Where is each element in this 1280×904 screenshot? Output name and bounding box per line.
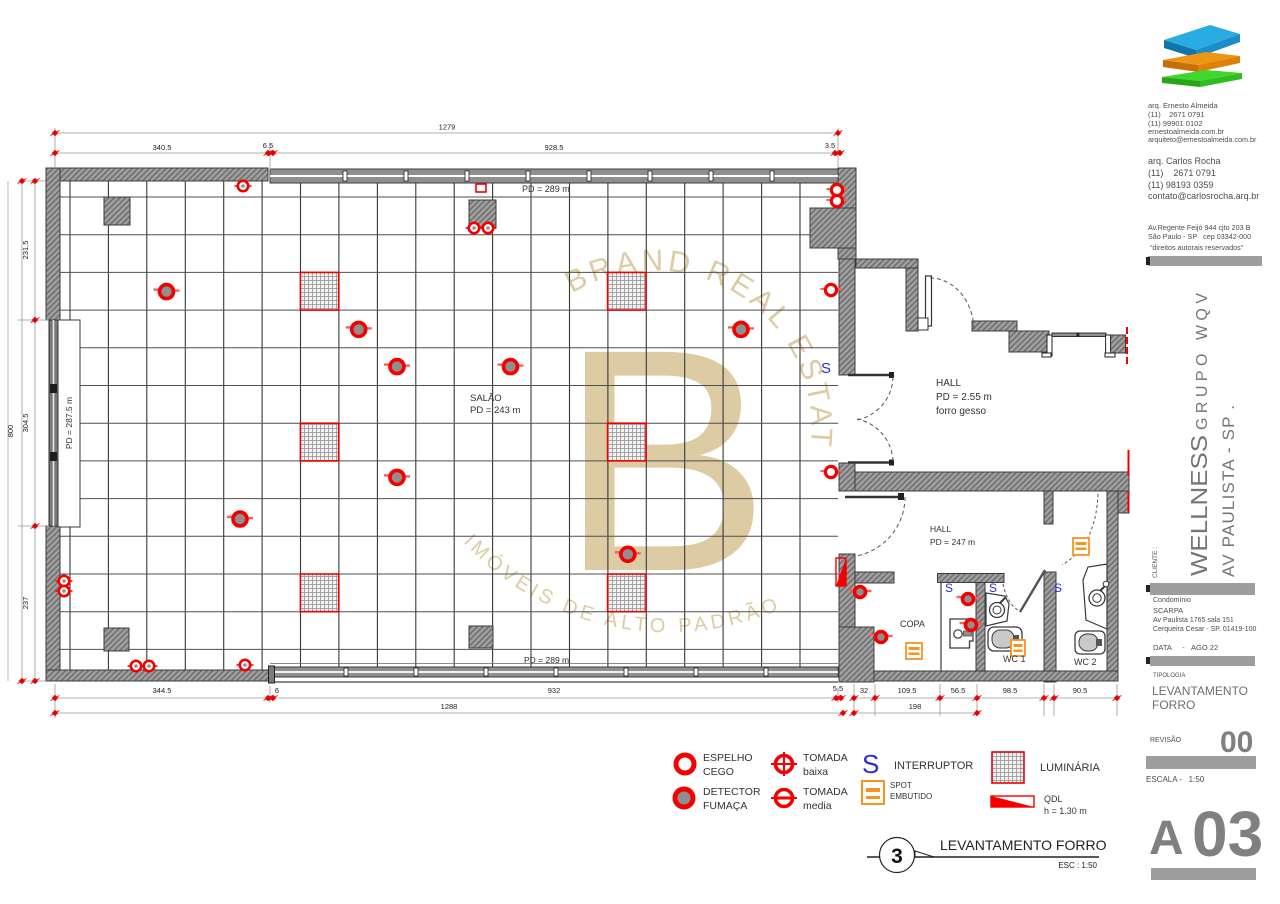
svg-text:S: S	[1054, 581, 1062, 595]
svg-text:REVISÃO: REVISÃO	[1150, 735, 1182, 744]
svg-text:LEVANTAMENTO FORRO: LEVANTAMENTO FORRO	[940, 837, 1107, 853]
svg-text:WELLNESS: WELLNESS	[1186, 435, 1212, 576]
svg-text:(11) 2671 0791: (11) 2671 0791	[1148, 110, 1205, 119]
svg-text:WC 2: WC 2	[1074, 657, 1097, 667]
svg-text:PD = 2.55 m: PD = 2.55 m	[936, 392, 992, 403]
svg-text:(11) 2671 0791: (11) 2671 0791	[1148, 168, 1216, 178]
svg-text:3: 3	[891, 845, 903, 868]
svg-text:arq. Ernesto Almeida: arq. Ernesto Almeida	[1148, 101, 1218, 110]
svg-text:1288: 1288	[441, 702, 458, 711]
svg-text:1279: 1279	[439, 123, 456, 132]
svg-text:arquiteto@ernestoalmeida.com.b: arquiteto@ernestoalmeida.com.br	[1148, 135, 1257, 144]
svg-text:ESPELHO: ESPELHO	[703, 752, 753, 764]
svg-text:3.5: 3.5	[825, 141, 835, 150]
svg-text:5.5: 5.5	[833, 684, 843, 693]
svg-text:S: S	[821, 360, 831, 377]
svg-text:Av.Regente Feijó 944 cjto 203: Av.Regente Feijó 944 cjto 203 B	[1148, 223, 1251, 232]
svg-text:CEGO: CEGO	[703, 766, 734, 778]
svg-text:PD = 243 m: PD = 243 m	[470, 405, 521, 416]
svg-text:304.5: 304.5	[21, 414, 30, 433]
svg-text:contato@carlosrocha.arq.br: contato@carlosrocha.arq.br	[1148, 191, 1259, 201]
svg-text:56.5: 56.5	[951, 686, 966, 695]
svg-text:Av Paulista 1765 sala 151: Av Paulista 1765 sala 151	[1153, 617, 1234, 624]
svg-text:S: S	[862, 749, 879, 779]
svg-text:baixa: baixa	[803, 766, 828, 778]
svg-text:AV PAULISTA - SP .: AV PAULISTA - SP .	[1219, 405, 1238, 577]
svg-text:800: 800	[6, 425, 15, 438]
svg-text:928.5: 928.5	[545, 143, 564, 152]
svg-text:PD = 289 m: PD = 289 m	[524, 655, 569, 665]
svg-text:SCARPA: SCARPA	[1153, 606, 1183, 615]
svg-text:HALL: HALL	[930, 524, 952, 534]
svg-text:A: A	[1149, 812, 1184, 865]
svg-text:CLIENTE :: CLIENTE :	[1152, 547, 1159, 578]
svg-text:ESC : 1:50: ESC : 1:50	[1058, 861, 1097, 870]
svg-text:231.5: 231.5	[21, 241, 30, 260]
svg-text:São Paulo - SP cep 03342-000: São Paulo - SP cep 03342-000	[1148, 232, 1251, 241]
svg-text:INTERRUPTOR: INTERRUPTOR	[894, 760, 973, 772]
svg-text:SPOT: SPOT	[890, 781, 912, 790]
svg-text:6: 6	[275, 686, 279, 695]
svg-text:Condomínio: Condomínio	[1153, 597, 1191, 604]
svg-text:198: 198	[909, 702, 922, 711]
svg-text:SALÃO: SALÃO	[470, 393, 502, 404]
svg-text:90.5: 90.5	[1073, 686, 1088, 695]
svg-text:340.5: 340.5	[153, 143, 172, 152]
svg-text:LEVANTAMENTO: LEVANTAMENTO	[1152, 684, 1248, 698]
svg-text:HALL: HALL	[936, 378, 961, 389]
svg-text:344.5: 344.5	[153, 686, 172, 695]
svg-text:media: media	[803, 800, 832, 812]
svg-text:TOMADA: TOMADA	[803, 786, 848, 798]
svg-text:98.5: 98.5	[1003, 686, 1018, 695]
svg-text:WC 1: WC 1	[1003, 654, 1026, 664]
svg-text:forro gesso: forro gesso	[936, 406, 986, 417]
svg-text:109.5: 109.5	[898, 686, 917, 695]
svg-text:COPA: COPA	[900, 619, 925, 629]
svg-text:FORRO: FORRO	[1152, 698, 1195, 712]
svg-text:“direitos autorais reservados”: “direitos autorais reservados”	[1150, 243, 1244, 252]
svg-text:S: S	[989, 581, 997, 595]
svg-text:S: S	[945, 581, 953, 595]
svg-text:PD = 289 m: PD = 289 m	[522, 184, 570, 194]
svg-text:TOMADA: TOMADA	[803, 752, 848, 764]
svg-text:PD = 247 m: PD = 247 m	[930, 537, 975, 547]
svg-text:TIPOLOGIA: TIPOLOGIA	[1153, 673, 1185, 679]
svg-text:(11) 98193 0359: (11) 98193 0359	[1148, 180, 1213, 190]
svg-text:DETECTOR: DETECTOR	[703, 786, 761, 798]
svg-text:237: 237	[21, 597, 30, 610]
svg-text:DATA - AGO 22: DATA - AGO 22	[1153, 643, 1218, 652]
svg-text:00: 00	[1220, 726, 1253, 759]
svg-text:QDL: QDL	[1044, 794, 1063, 804]
svg-text:arq. Carlos Rocha: arq. Carlos Rocha	[1148, 156, 1221, 166]
svg-text:03: 03	[1192, 798, 1263, 870]
svg-text:LUMINÁRIA: LUMINÁRIA	[1040, 761, 1101, 774]
svg-text:32: 32	[860, 686, 868, 695]
svg-text:PD = 287.5 m: PD = 287.5 m	[64, 397, 74, 449]
svg-text:ESCALA - 1:50: ESCALA - 1:50	[1146, 775, 1205, 784]
svg-text:6.5: 6.5	[263, 141, 273, 150]
svg-text:FUMAÇA: FUMAÇA	[703, 800, 747, 812]
svg-text:GRUPO WQV: GRUPO WQV	[1194, 293, 1211, 430]
svg-text:h = 1.30 m: h = 1.30 m	[1044, 806, 1087, 816]
svg-text:EMBUTIDO: EMBUTIDO	[890, 792, 932, 801]
svg-text:932: 932	[548, 686, 561, 695]
svg-text:Cerqueira Cesar - SP. 01419-10: Cerqueira Cesar - SP. 01419-100	[1153, 626, 1256, 633]
